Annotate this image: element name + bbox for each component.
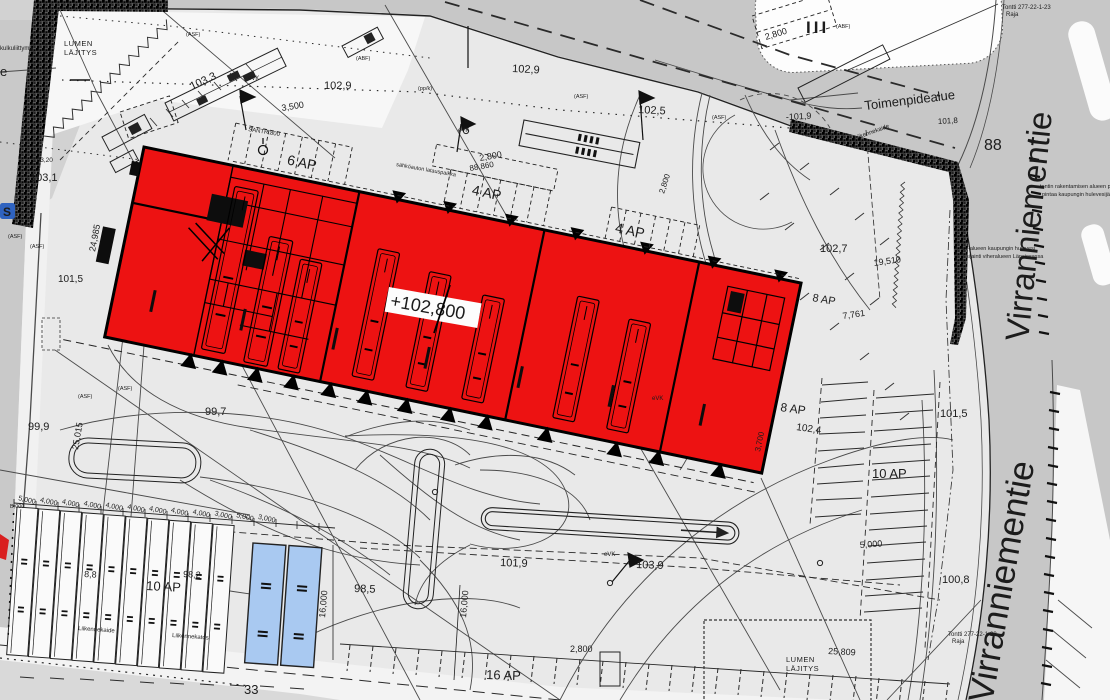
svg-text:-101,9: -101,9 (786, 111, 812, 122)
svg-text:Tontti 277-22-1-23: Tontti 277-22-1-23 (948, 632, 997, 638)
svg-text:eVK: eVK (652, 396, 663, 402)
svg-text:100,8: 100,8 (942, 574, 970, 586)
svg-text:88: 88 (984, 137, 1002, 154)
svg-text:5,000: 5,000 (859, 538, 882, 550)
svg-text:LÄJITYS: LÄJITYS (64, 48, 97, 57)
svg-text:(pp/k): (pp/k) (418, 86, 432, 92)
svg-text:102,5: 102,5 (638, 104, 666, 117)
svg-text:(ASF): (ASF) (118, 386, 133, 392)
svg-text:99,7: 99,7 (205, 406, 226, 418)
svg-text:(ASF): (ASF) (186, 32, 201, 38)
svg-text:pintaa kaupungin hulevesijärj: pintaa kaupungin hulevesijärj (1042, 192, 1110, 198)
svg-text:(ASF): (ASF) (574, 94, 589, 100)
svg-text:(ASF): (ASF) (30, 244, 45, 250)
svg-text:e: e (0, 64, 7, 79)
svg-text:S: S (3, 205, 11, 219)
svg-text:101,5: 101,5 (940, 408, 968, 420)
svg-text:eVK: eVK (604, 552, 615, 558)
svg-text:eVK: eVK (248, 76, 259, 82)
svg-text:103,20: 103,20 (33, 157, 53, 164)
svg-text:25,809: 25,809 (828, 646, 856, 657)
svg-text:33: 33 (244, 682, 258, 697)
svg-text:eVK: eVK (458, 128, 469, 134)
svg-text:(ASF): (ASF) (78, 394, 93, 400)
svg-text:(ASF): (ASF) (8, 234, 23, 240)
svg-text:98,5: 98,5 (354, 583, 376, 596)
svg-text:LUMEN: LUMEN (64, 39, 93, 48)
svg-text:101,9: 101,9 (500, 557, 528, 570)
svg-text:B,000: B,000 (10, 504, 24, 510)
svg-text:99,9: 99,9 (28, 421, 49, 433)
svg-text:Raja: Raja (1006, 12, 1019, 18)
svg-text:Tontti 277-22-1-23: Tontti 277-22-1-23 (1002, 5, 1051, 11)
svg-text:102,9: 102,9 (324, 80, 352, 92)
svg-text:LÄJITYS: LÄJITYS (786, 664, 819, 673)
svg-text:(ABF): (ABF) (356, 56, 371, 62)
svg-text:2,800: 2,800 (570, 644, 593, 654)
svg-text:kulkuliittyma: kulkuliittyma (0, 46, 33, 52)
svg-text:10 AP: 10 AP (872, 466, 907, 481)
svg-text:(ABF): (ABF) (836, 24, 851, 30)
svg-text:103,1: 103,1 (30, 172, 58, 184)
svg-text:(ASF): (ASF) (712, 115, 727, 121)
svg-text:10 AP: 10 AP (146, 578, 181, 595)
svg-text:102,7: 102,7 (820, 243, 848, 255)
svg-text:101,5: 101,5 (58, 274, 83, 285)
svg-text:8,8: 8,8 (84, 569, 97, 580)
svg-text:tontin rakentamisen alueen pri: tontin rakentamisen alueen pri (1040, 184, 1110, 190)
svg-text:LUMEN: LUMEN (786, 655, 815, 664)
svg-text:Raja: Raja (952, 639, 965, 645)
svg-text:103,9: 103,9 (636, 559, 664, 572)
svg-text:98,2: 98,2 (183, 569, 201, 580)
svg-text:16 AP: 16 AP (486, 667, 521, 683)
svg-text:101,8: 101,8 (938, 116, 959, 126)
svg-text:sijainti viheralueen Länsiosas: sijainti viheralueen Länsiosassa (966, 254, 1044, 260)
svg-text:102,9: 102,9 (512, 63, 540, 76)
svg-text:LV-alueen kaupungin hulevesi: LV-alueen kaupungin hulevesi (962, 246, 1035, 252)
